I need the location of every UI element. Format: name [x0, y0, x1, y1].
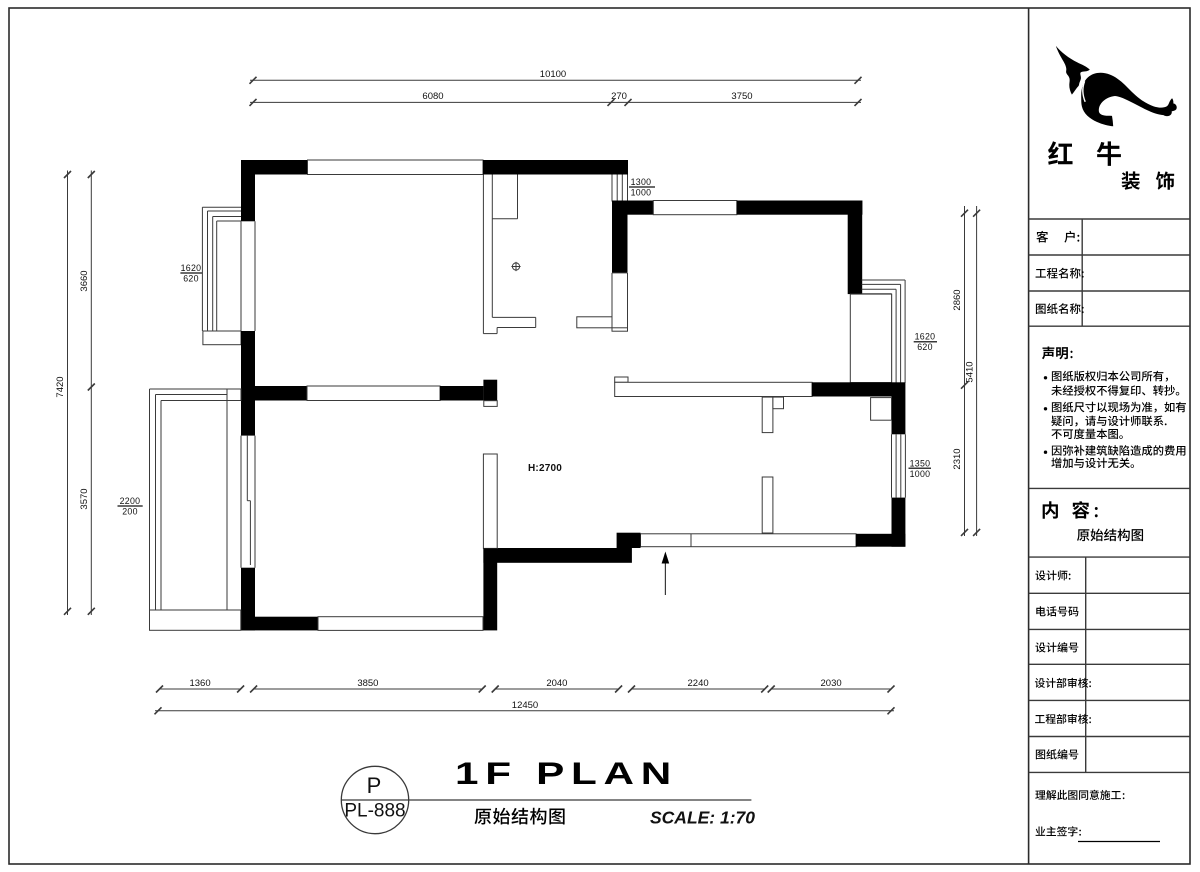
svg-text:H:2700: H:2700: [528, 463, 562, 474]
svg-text:3850: 3850: [357, 678, 378, 689]
svg-text:1360: 1360: [189, 678, 210, 689]
svg-text:2030: 2030: [821, 678, 842, 689]
svg-text:1F PLAN: 1F PLAN: [455, 755, 678, 791]
svg-text:200: 200: [122, 507, 138, 517]
svg-text:2240: 2240: [688, 678, 709, 689]
svg-text:620: 620: [183, 274, 199, 284]
svg-text:620: 620: [917, 342, 933, 352]
svg-text:2200: 2200: [120, 496, 141, 506]
svg-text:1000: 1000: [910, 469, 931, 479]
svg-text:1350: 1350: [910, 458, 931, 468]
svg-text:1620: 1620: [181, 263, 202, 273]
svg-text:1620: 1620: [915, 332, 936, 342]
svg-text:P: P: [367, 773, 382, 798]
svg-text:12450: 12450: [512, 700, 538, 711]
svg-text:1000: 1000: [631, 188, 652, 198]
svg-text:7420: 7420: [55, 376, 66, 397]
svg-text:2310: 2310: [952, 448, 963, 469]
svg-text:5410: 5410: [965, 361, 976, 382]
svg-text:2860: 2860: [952, 289, 963, 310]
svg-text:3570: 3570: [79, 488, 90, 509]
svg-text:10100: 10100: [540, 69, 566, 80]
svg-text:270: 270: [611, 91, 627, 102]
svg-text:PL-888: PL-888: [344, 801, 405, 822]
svg-text:2040: 2040: [546, 678, 567, 689]
svg-text:3660: 3660: [79, 270, 90, 291]
svg-text:SCALE: 1:70: SCALE: 1:70: [650, 808, 755, 828]
svg-text:1300: 1300: [631, 177, 652, 187]
svg-text:6080: 6080: [422, 91, 443, 102]
svg-text:3750: 3750: [731, 91, 752, 102]
